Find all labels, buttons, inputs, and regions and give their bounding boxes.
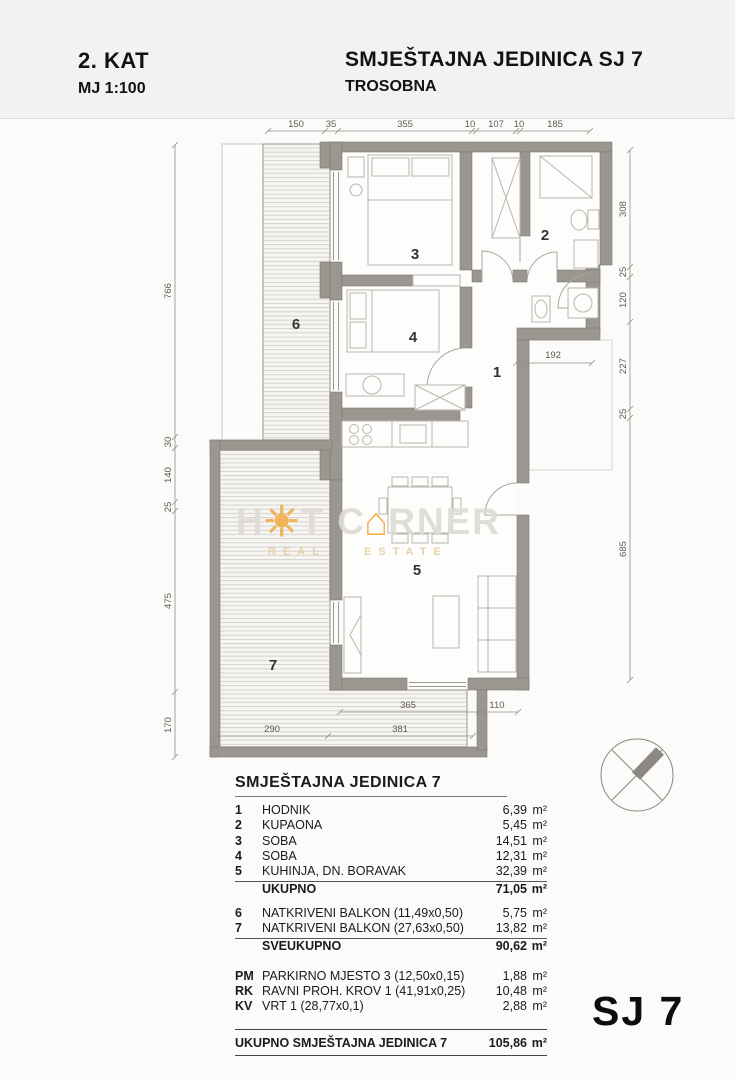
dim-label: 766 — [163, 283, 174, 299]
room-label-hodnik: 1 — [493, 364, 501, 381]
room-label-balkon7: 7 — [269, 657, 277, 674]
closet-strip — [413, 275, 460, 286]
dim-label: 355 — [397, 119, 413, 130]
dim-label: 120 — [618, 292, 629, 308]
legend-row: KV VRT 1 (28,77x0,1) 2,88 m² — [235, 999, 547, 1014]
room4-wardrobe — [415, 385, 465, 410]
dim-label: 107 — [488, 119, 504, 130]
dining-table — [379, 477, 461, 543]
room4-desk — [346, 374, 404, 396]
dim-label: 475 — [163, 593, 174, 609]
dim-label: 170 — [163, 717, 174, 733]
room-label-soba4: 4 — [409, 329, 418, 346]
legend-row: 7 NATKRIVENI BALKON (27,63x0,50) 13,82 m… — [235, 921, 547, 936]
sofa — [478, 576, 516, 672]
legend-row: 4 SOBA 12,31 m² — [235, 849, 547, 864]
flat-roof-outline — [529, 340, 612, 470]
legend-row: 6 NATKRIVENI BALKON (11,49x0,50) 5,75 m² — [235, 906, 547, 921]
legend-row: 1 HODNIK 6,39 m² — [235, 803, 547, 818]
unit-code-label: SJ 7 — [592, 988, 684, 1035]
legend-row: 5 KUHINJA, DN. BORAVAK 32,39 m² — [235, 864, 547, 879]
floorplan-page: 2. KAT MJ 1:100 SMJEŠTAJNA JEDINICA SJ 7… — [0, 0, 735, 1080]
dim-label: 10 — [465, 119, 476, 130]
area-legend: SMJEŠTAJNA JEDINICA 7 1 HODNIK 6,39 m² 2… — [235, 774, 547, 1056]
dim-label: 140 — [163, 467, 174, 483]
legend-row: RK RAVNI PROH. KROV 1 (41,91x0,25) 10,48… — [235, 984, 547, 999]
dim-label: 192 — [545, 350, 561, 361]
room-label-kupaona: 2 — [541, 227, 549, 244]
legend-row: 2 KUPAONA 5,45 m² — [235, 818, 547, 833]
dim-label: 685 — [618, 541, 629, 557]
dim-label: 185 — [547, 119, 563, 130]
dim-label: 365 — [400, 700, 416, 711]
dim-label: 308 — [618, 201, 629, 217]
dim-label: 25 — [163, 502, 174, 513]
dim-label: 35 — [326, 119, 337, 130]
dim-label: 381 — [392, 724, 408, 735]
dim-label: 25 — [618, 267, 629, 278]
room-label-kuhinja: 5 — [413, 562, 421, 579]
legend-total-row: SVEUKUPNO 90,62 m² — [235, 939, 547, 954]
dim-label: 25 — [618, 409, 629, 420]
dim-label: 110 — [489, 700, 504, 711]
north-indicator-icon — [601, 739, 673, 811]
legend-total-row: UKUPNO 71,05 m² — [235, 882, 547, 897]
room4-bed — [347, 290, 439, 352]
legend-row: 3 SOBA 14,51 m² — [235, 834, 547, 849]
dim-label: 150 — [288, 119, 304, 130]
dim-label: 227 — [618, 358, 629, 374]
dim-label: 30 — [163, 437, 174, 448]
room-label-balkon6: 6 — [292, 316, 300, 333]
dim-label: 10 — [514, 119, 525, 130]
room-label-soba3: 3 — [411, 246, 419, 263]
dim-label: 290 — [264, 724, 280, 735]
legend-grand-total-row: UKUPNO SMJEŠTAJNA JEDINICA 7 105,86 m² — [235, 1029, 547, 1056]
legend-title: SMJEŠTAJNA JEDINICA 7 — [235, 774, 507, 797]
kitchen-counter — [342, 421, 468, 447]
balcony-6-area — [222, 144, 330, 440]
hall-wardrobe — [492, 158, 520, 238]
legend-row: PM PARKIRNO MJESTO 3 (12,50x0,15) 1,88 m… — [235, 969, 547, 984]
tv-unit — [344, 597, 361, 673]
coffee-table — [433, 596, 459, 648]
